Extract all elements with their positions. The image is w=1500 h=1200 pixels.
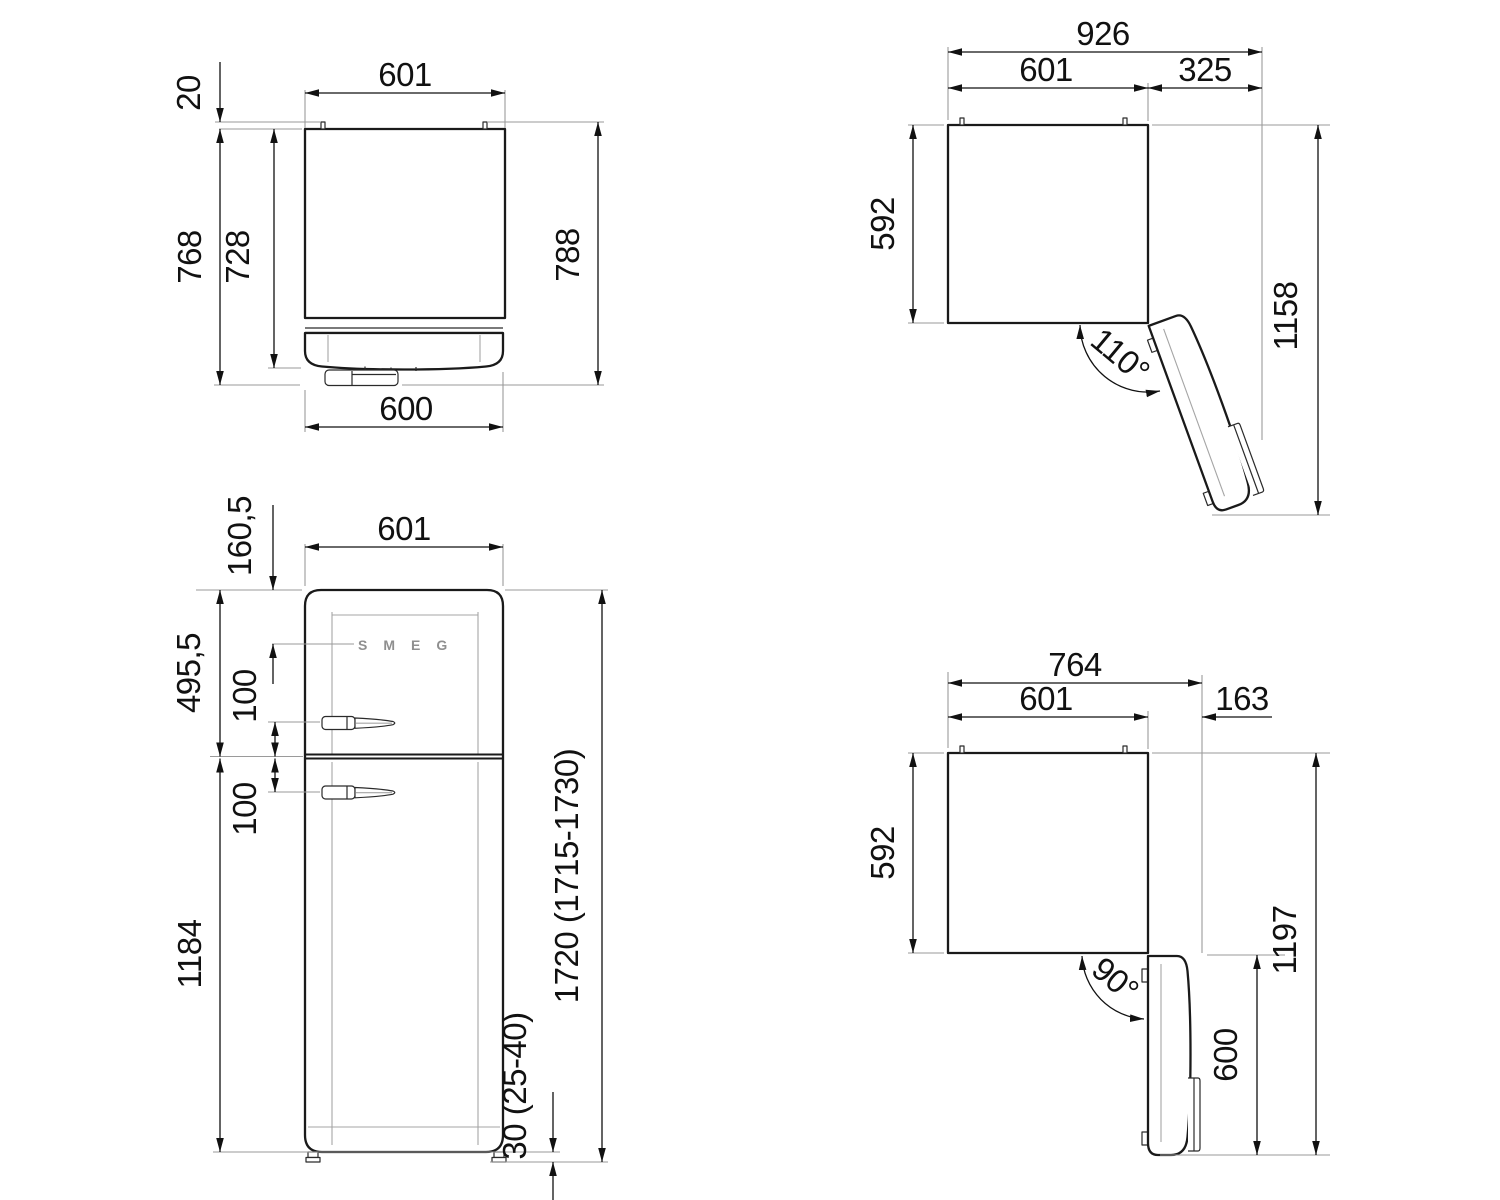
dim-depth-body: 728	[219, 230, 256, 284]
technical-drawing-page: 601 20 768 728 788 600 110° 926 601	[0, 0, 1500, 1200]
dim-feet-height: 30 (25-40)	[496, 1012, 533, 1159]
dim-door-width: 600	[379, 390, 433, 427]
hinge-left	[960, 746, 964, 753]
view-top-door-110: 110° 926 601 325 592 1158	[864, 15, 1330, 515]
fridge-front-body	[305, 590, 503, 1152]
view-top-closed: 601 20 768 728 788 600	[170, 56, 604, 432]
view-front: SMEG	[170, 496, 608, 1200]
dim-door-angle: 110°	[1084, 321, 1157, 390]
view-top-door-90: 90° 764 601 163 592 600 1197	[864, 646, 1330, 1155]
brand-logo: SMEG	[358, 637, 463, 653]
dim-handle-below-split: 100	[226, 782, 263, 836]
dim-total-depth: 1158	[1267, 282, 1304, 351]
open-door-90	[1142, 956, 1200, 1155]
hinge-right	[1123, 118, 1127, 125]
dim-fridge-door-height: 495,5	[170, 633, 207, 713]
dim-total-width: 926	[1076, 15, 1130, 52]
dim-depth: 592	[864, 826, 901, 880]
adjustable-feet	[306, 1152, 506, 1162]
hinge-right	[483, 122, 487, 129]
dim-hinge-offset: 20	[170, 75, 207, 111]
open-door-110	[1143, 308, 1266, 515]
hinge-left	[321, 122, 325, 129]
dim-depth-total: 788	[549, 228, 586, 282]
dim-total-depth: 1197	[1266, 906, 1303, 975]
dim-top-width: 601	[378, 56, 432, 93]
dim-cabinet-width: 601	[1019, 680, 1073, 717]
cabinet-top-view	[948, 125, 1148, 323]
dim-split-to-floor: 1184	[171, 919, 208, 988]
dimension-drawing: 601 20 768 728 788 600 110° 926 601	[0, 0, 1500, 1200]
dim-door-clearance: 325	[1178, 51, 1232, 88]
dim-cabinet-width: 601	[1019, 51, 1073, 88]
dim-door-angle: 90°	[1085, 949, 1146, 1008]
door-handle-top-view	[325, 370, 398, 386]
dim-door-clearance: 163	[1215, 680, 1269, 717]
hinge-left	[960, 118, 964, 125]
hinge-right	[1123, 746, 1127, 753]
dim-total-height: 1720 (1715-1730)	[548, 749, 585, 1003]
cabinet-top-view	[948, 753, 1148, 953]
dim-width: 601	[377, 510, 431, 547]
dim-door-length: 600	[1207, 1028, 1244, 1082]
dim-total-width: 764	[1048, 646, 1102, 683]
dim-top-to-logo: 160,5	[221, 496, 258, 576]
door-top-view	[305, 333, 503, 370]
cabinet-top-view	[305, 129, 505, 318]
dim-depth: 592	[864, 197, 901, 251]
dim-handle-above-split: 100	[226, 669, 263, 723]
dim-depth-with-door: 768	[171, 230, 208, 284]
